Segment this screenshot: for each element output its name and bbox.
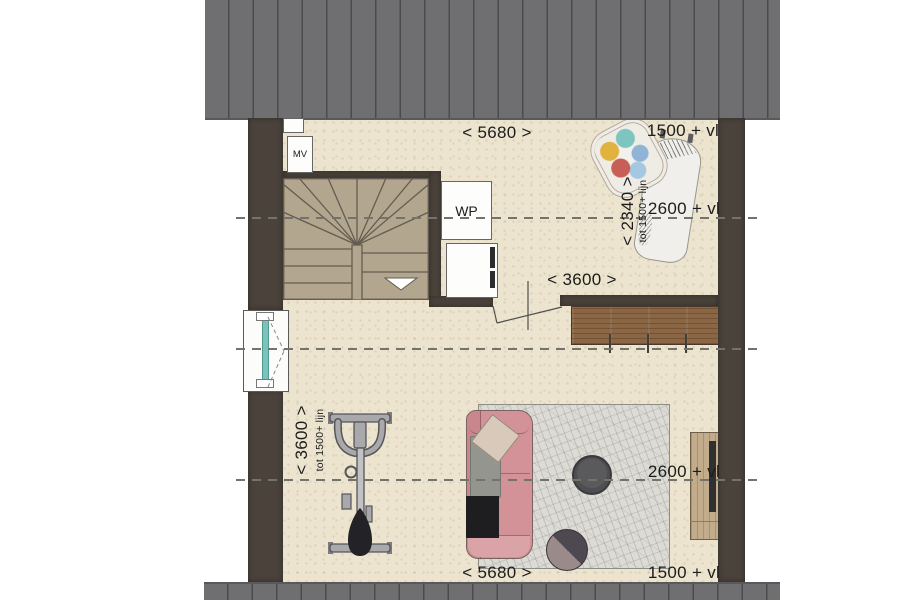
level-label-bottom-right: 1500 + vl: [648, 563, 720, 583]
exterior-wall-left-upper: [248, 118, 283, 310]
window-opening-direction: [238, 304, 293, 396]
level-label-top-right: 1500 + vl: [647, 121, 719, 141]
washer-detail-top: [490, 247, 495, 268]
window: [238, 304, 293, 396]
sideboard: [571, 306, 719, 345]
duct-box: [283, 118, 304, 133]
side-table: [572, 455, 612, 495]
level-label-upper-right: 2600 + vl: [648, 199, 720, 219]
pouf: [546, 529, 588, 571]
dimension-note-right-height: tot 1500+ lijn: [637, 180, 649, 243]
sofa-armrest-bottom: [468, 535, 530, 557]
roof-panel-bottom: [204, 582, 780, 600]
sideboard-divider-tick: [647, 334, 649, 353]
heat-pump-unit: WP: [441, 181, 492, 240]
interior-wall-right-of-door: [560, 295, 718, 306]
dimension-label-top-width: < 5680 >: [462, 123, 532, 143]
mv-label: MV: [293, 149, 307, 160]
mv-unit: MV: [287, 136, 313, 173]
floor-plan-canvas: MV WP: [0, 0, 900, 600]
sideboard-divider-tick: [685, 334, 687, 353]
sideboard-divider-tick: [609, 334, 611, 353]
stair-wall-right: [429, 171, 441, 307]
dimension-label-right-height: < 2340 >: [618, 176, 638, 246]
tv-cabinet-divider: [690, 521, 718, 522]
dimension-label-bottom-width: < 5680 >: [462, 563, 532, 583]
sofa-black-blanket: [466, 496, 499, 538]
staircase: [283, 178, 429, 300]
dimension-note-left-height: tot 1500+ lijn: [314, 409, 326, 472]
dimension-label-left-height: < 3600 >: [292, 405, 312, 475]
exterior-wall-left-lower: [248, 390, 283, 582]
roof-panel-top: [205, 0, 780, 120]
exercise-bike: [322, 408, 398, 560]
level-label-lower-right: 2600 + vl: [648, 462, 720, 482]
dimension-label-middle-width: < 3600 >: [547, 270, 617, 290]
height-dashed-line-middle: [236, 348, 762, 350]
exterior-wall-right: [718, 118, 745, 582]
